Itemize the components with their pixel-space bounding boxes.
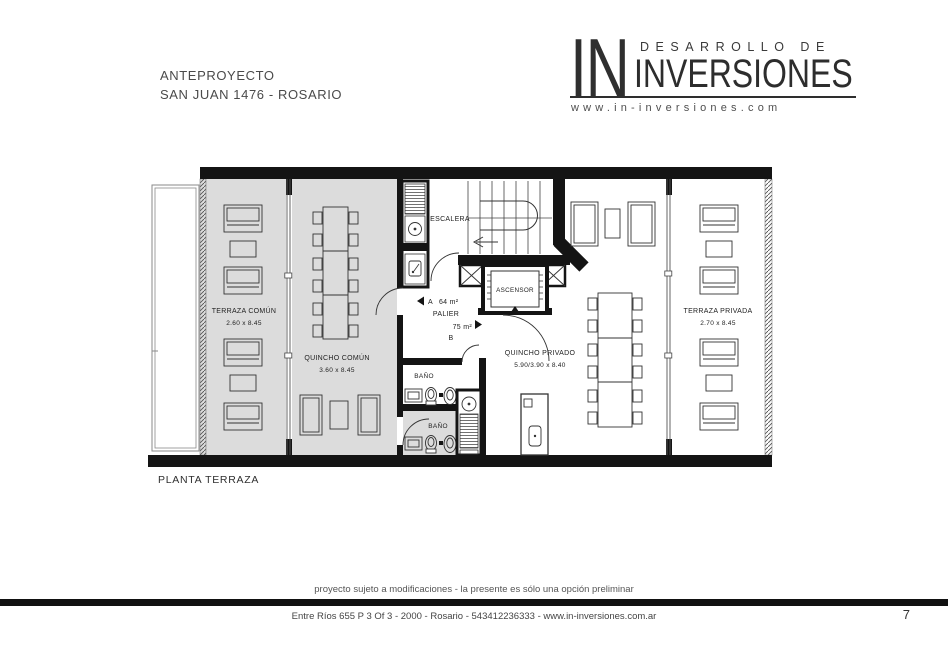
label-quincho-privado-dims: 5.90/3.90 x 8.40 [514,362,566,369]
plan-title: PLANTA TERRAZA [158,474,259,486]
unit-b-arrow-icon [475,320,482,329]
label-terraza-comun: TERRAZA COMÚN [212,306,277,315]
label-unit-a: A64 m² [428,299,459,306]
service-shaft-bottom [457,390,481,455]
right-hatch-edge [765,179,772,455]
shaft-column-left [460,265,483,286]
project-title: ANTEPROYECTO SAN JUAN 1476 - ROSARIO [160,66,342,104]
floor-plan: ASCENSOR [140,155,790,480]
staircase [468,181,552,254]
balcony-outline [152,185,199,451]
label-quincho-comun-dims: 3.60 x 8.45 [319,367,355,374]
logo-brand: INVERSIONES [634,57,853,91]
terraza-privada-furniture [700,205,738,430]
project-title-line1: ANTEPROYECTO [160,66,342,85]
logo-monogram: IN [570,39,628,100]
label-quincho-comun: QUINCHO COMÚN [304,353,369,362]
louver-vent-icon [405,184,425,214]
project-title-line2: SAN JUAN 1476 - ROSARIO [160,85,342,104]
bano1-fixtures [405,388,456,406]
disclaimer-text: proyecto sujeto a modificaciones - la pr… [0,584,948,595]
label-terraza-privada: TERRAZA PRIVADA [684,308,753,315]
logo-rule [570,96,856,98]
page-number: 7 [903,607,910,622]
label-palier: PALIER [433,311,459,318]
quincho-privado-furniture [521,202,655,455]
service-shaft-top [402,181,428,287]
label-bano1: BAÑO [414,371,434,380]
company-logo: IN DESARROLLO DE INVERSIONES www.in-inve… [570,30,860,118]
quincho-comun-area [292,179,397,455]
elevator: ASCENSOR [483,265,547,313]
stair-handrail [480,201,538,230]
louver-vent-icon [460,414,478,448]
door-bano1 [462,345,479,362]
wall-bottom [148,455,772,467]
logo-website: www.in-inversiones.com [571,102,781,114]
label-unit-b-area: 75 m² [453,324,473,331]
footer-address: Entre Ríos 655 P 3 Of 3 - 2000 - Rosario… [0,611,948,622]
label-ascensor: ASCENSOR [496,287,534,294]
label-bano2: BAÑO [428,421,448,430]
sink-icon [405,389,422,402]
label-escalera: ESCALERA [430,216,470,223]
window-wall-right [665,179,672,455]
terraza-comun-area [200,179,286,455]
label-unit-b: B [449,335,454,342]
label-terraza-privada-dims: 2.70 x 8.45 [700,320,736,327]
grill-cabinet [521,394,548,455]
label-terraza-comun-dims: 2.60 x 8.45 [226,320,262,327]
left-hatch-edge [200,179,206,455]
page: ANTEPROYECTO SAN JUAN 1476 - ROSARIO IN … [0,0,948,670]
wall-top [200,167,772,179]
unit-a-arrow-icon [417,297,424,306]
footer-divider-bar [0,599,948,606]
label-quincho-privado: QUINCHO PRIVADO [505,350,576,357]
door-escalera [431,253,459,281]
stair-direction-arrow [474,237,498,247]
